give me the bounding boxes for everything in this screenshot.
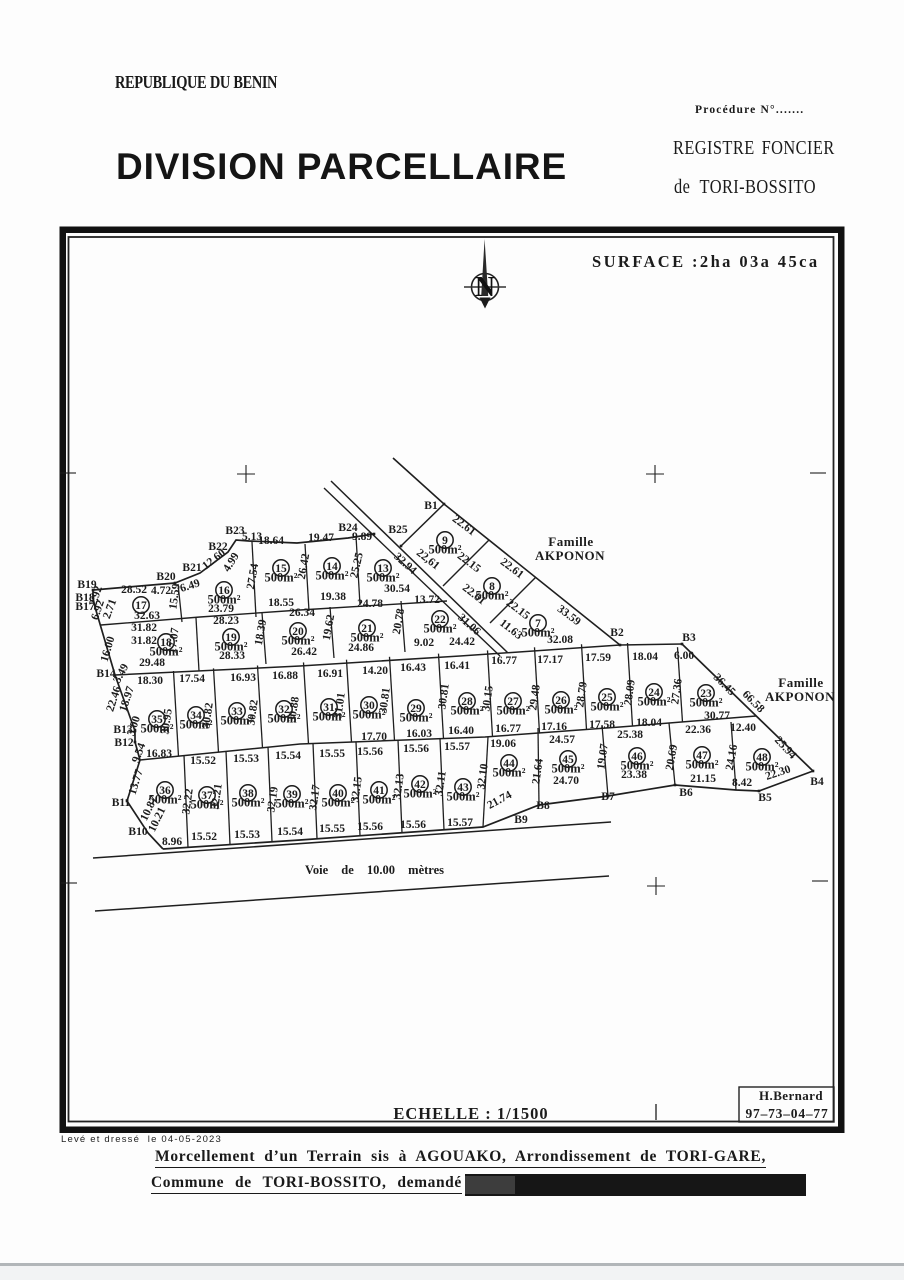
svg-text:500m²: 500m² [451, 704, 484, 718]
svg-text:500m²: 500m² [429, 543, 462, 557]
svg-text:16.91: 16.91 [317, 668, 343, 680]
svg-text:500m²: 500m² [690, 696, 723, 710]
svg-text:27.54: 27.54 [245, 562, 261, 590]
svg-text:22.61: 22.61 [498, 556, 526, 581]
svg-text:21.74: 21.74 [485, 789, 514, 812]
svg-text:B2: B2 [610, 627, 624, 639]
svg-text:15.56: 15.56 [357, 746, 383, 758]
svg-text:17.16: 17.16 [541, 721, 567, 733]
svg-text:97–73–04–77: 97–73–04–77 [745, 1106, 828, 1121]
svg-text:16.88: 16.88 [272, 670, 298, 682]
svg-text:B22: B22 [208, 541, 227, 553]
svg-text:Famille: Famille [548, 534, 593, 549]
svg-text:B6: B6 [679, 787, 693, 799]
svg-text:32.17: 32.17 [307, 784, 323, 812]
svg-text:21.64: 21.64 [530, 758, 546, 786]
svg-text:16.00: 16.00 [99, 635, 118, 663]
svg-text:28.79: 28.79 [574, 681, 590, 709]
svg-text:18.30: 18.30 [137, 675, 163, 687]
svg-text:30.54: 30.54 [384, 583, 410, 595]
svg-text:22.36: 22.36 [685, 724, 711, 736]
svg-text:19.62: 19.62 [321, 613, 337, 641]
svg-text:26.42: 26.42 [291, 646, 317, 658]
svg-text:500m²: 500m² [591, 700, 624, 714]
svg-text:20.78: 20.78 [391, 607, 407, 635]
svg-text:24.16: 24.16 [724, 743, 740, 771]
svg-text:16.93: 16.93 [230, 672, 256, 684]
svg-text:B13: B13 [113, 724, 132, 736]
svg-text:B14: B14 [96, 668, 115, 680]
svg-text:31.06: 31.06 [455, 612, 482, 638]
svg-text:15.55: 15.55 [319, 748, 345, 760]
svg-text:15.52: 15.52 [190, 755, 216, 767]
svg-text:28.33: 28.33 [219, 650, 245, 662]
svg-text:24.57: 24.57 [549, 734, 575, 746]
svg-text:N: N [475, 272, 495, 303]
svg-text:AKPONON: AKPONON [765, 689, 835, 704]
svg-text:18.04: 18.04 [636, 717, 662, 729]
svg-text:17.59: 17.59 [585, 652, 611, 664]
svg-text:500m²: 500m² [316, 569, 349, 583]
svg-text:B24: B24 [338, 522, 357, 534]
svg-text:18.64: 18.64 [258, 535, 284, 547]
svg-text:B9: B9 [514, 814, 528, 826]
svg-text:21.15: 21.15 [690, 773, 716, 785]
svg-text:24.42: 24.42 [449, 636, 475, 648]
svg-text:16.83: 16.83 [146, 748, 172, 760]
svg-text:500m²: 500m² [545, 703, 578, 717]
svg-text:B23: B23 [225, 525, 244, 537]
svg-text:19.06: 19.06 [490, 738, 516, 750]
svg-text:500m²: 500m² [447, 790, 480, 804]
svg-text:22.61: 22.61 [450, 513, 478, 538]
svg-text:500m²: 500m² [638, 695, 671, 709]
svg-text:32.63: 32.63 [134, 610, 160, 622]
svg-text:18.04: 18.04 [632, 651, 658, 663]
svg-text:500m²: 500m² [400, 711, 433, 725]
svg-text:16.77: 16.77 [491, 655, 517, 667]
svg-text:28.09: 28.09 [622, 679, 638, 707]
svg-text:B21: B21 [182, 562, 201, 574]
svg-text:15.54: 15.54 [275, 750, 301, 762]
svg-text:ECHELLE : 1/1500: ECHELLE : 1/1500 [393, 1104, 548, 1123]
svg-text:500m²: 500m² [424, 622, 457, 636]
svg-text:24.70: 24.70 [553, 775, 579, 787]
svg-text:30.81: 30.81 [377, 687, 393, 715]
svg-text:17.17: 17.17 [537, 654, 563, 666]
svg-text:15.57: 15.57 [444, 741, 470, 753]
svg-text:15.55: 15.55 [319, 823, 345, 835]
svg-text:23.38: 23.38 [621, 769, 647, 781]
svg-text:15.56: 15.56 [357, 821, 383, 833]
svg-text:31.82: 31.82 [131, 622, 157, 634]
svg-text:13.72: 13.72 [414, 594, 440, 606]
svg-text:19.47: 19.47 [308, 532, 334, 544]
svg-text:30.82: 30.82 [200, 702, 216, 730]
svg-text:23.79: 23.79 [208, 603, 234, 615]
svg-text:SURFACE :2ha 03a 45ca: SURFACE :2ha 03a 45ca [592, 252, 819, 271]
svg-text:22.15: 22.15 [455, 550, 483, 575]
svg-text:8.96: 8.96 [162, 836, 182, 848]
svg-text:B5: B5 [758, 792, 772, 804]
svg-text:B3: B3 [682, 632, 696, 644]
svg-text:15.53: 15.53 [233, 753, 259, 765]
svg-text:B1: B1 [424, 500, 438, 512]
svg-text:16.03: 16.03 [406, 728, 432, 740]
svg-text:19.38: 19.38 [320, 591, 346, 603]
svg-text:AKPONON: AKPONON [535, 548, 605, 563]
svg-text:2.71: 2.71 [101, 597, 119, 620]
svg-text:15.56: 15.56 [400, 819, 426, 831]
svg-text:6.00: 6.00 [674, 650, 694, 662]
svg-text:16.43: 16.43 [400, 662, 426, 674]
svg-text:Voie de 10.00 mètres: Voie de 10.00 mètres [305, 863, 444, 877]
svg-text:B12: B12 [114, 737, 133, 749]
svg-text:31.82: 31.82 [131, 635, 157, 647]
svg-text:15.52: 15.52 [191, 831, 217, 843]
svg-text:500m²: 500m² [686, 758, 719, 772]
svg-text:30.82: 30.82 [245, 699, 261, 727]
svg-text:500m²: 500m² [404, 787, 437, 801]
svg-text:17.70: 17.70 [361, 731, 387, 743]
svg-text:500m²: 500m² [265, 571, 298, 585]
svg-text:16.40: 16.40 [448, 725, 474, 737]
svg-text:26.42: 26.42 [296, 552, 312, 580]
svg-text:500m²: 500m² [493, 766, 526, 780]
svg-text:H.Bernard: H.Bernard [759, 1088, 823, 1103]
svg-text:30.77: 30.77 [704, 710, 730, 722]
svg-text:16.41: 16.41 [444, 660, 470, 672]
svg-text:B11: B11 [112, 797, 131, 809]
svg-text:24.78: 24.78 [357, 598, 383, 610]
svg-text:25.38: 25.38 [617, 729, 643, 741]
svg-text:28.52: 28.52 [121, 584, 147, 596]
svg-text:18.39: 18.39 [253, 618, 269, 646]
svg-text:66.58: 66.58 [740, 688, 767, 715]
svg-text:19.07: 19.07 [595, 743, 611, 771]
svg-text:B10: B10 [128, 826, 147, 838]
svg-text:500m²: 500m² [497, 704, 530, 718]
svg-text:B25: B25 [388, 524, 407, 536]
svg-text:29.48: 29.48 [139, 657, 165, 669]
svg-text:15.53: 15.53 [234, 829, 260, 841]
svg-text:500m²: 500m² [232, 796, 265, 810]
svg-text:26.34: 26.34 [289, 607, 315, 619]
svg-text:27.36: 27.36 [669, 678, 685, 706]
svg-text:500m²: 500m² [363, 793, 396, 807]
svg-text:B20: B20 [156, 571, 175, 583]
svg-text:30.81: 30.81 [436, 683, 452, 711]
svg-text:17.54: 17.54 [179, 673, 205, 685]
svg-text:15.56: 15.56 [403, 743, 429, 755]
svg-text:24.86: 24.86 [348, 642, 374, 654]
svg-text:15.57: 15.57 [447, 817, 473, 829]
svg-text:8.42: 8.42 [732, 777, 752, 789]
svg-text:25.25: 25.25 [348, 551, 366, 579]
svg-text:15.54: 15.54 [277, 826, 303, 838]
svg-text:25.94: 25.94 [772, 734, 799, 761]
svg-text:500m²: 500m² [552, 762, 585, 776]
svg-text:32.10: 32.10 [475, 763, 491, 791]
svg-text:32.08: 32.08 [547, 634, 573, 646]
svg-text:20.69: 20.69 [664, 743, 680, 771]
svg-text:33.59: 33.59 [555, 603, 583, 628]
svg-text:500m²: 500m² [276, 797, 309, 811]
svg-text:17.58: 17.58 [589, 719, 615, 731]
svg-text:30.15: 30.15 [480, 685, 496, 713]
svg-text:12.40: 12.40 [730, 722, 756, 734]
svg-text:31.01: 31.01 [332, 692, 348, 720]
svg-text:B4: B4 [810, 776, 824, 788]
svg-text:16.77: 16.77 [495, 723, 521, 735]
svg-text:14.20: 14.20 [362, 665, 388, 677]
svg-text:9.02: 9.02 [414, 637, 434, 649]
svg-text:28.23: 28.23 [213, 615, 239, 627]
svg-text:13.77: 13.77 [127, 768, 146, 796]
svg-text:29.48: 29.48 [527, 684, 543, 712]
svg-text:Famille: Famille [778, 675, 823, 690]
svg-text:22.15: 22.15 [504, 597, 532, 622]
